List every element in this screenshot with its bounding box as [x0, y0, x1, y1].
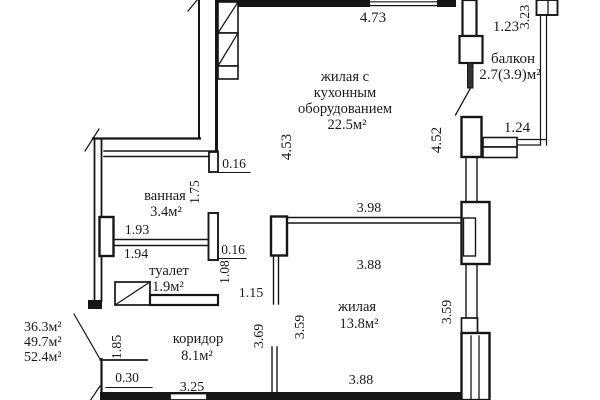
corridor-living-partition-upper: [274, 257, 279, 304]
bottom-wall: [100, 392, 462, 400]
dim-toilet-door-height: 1.08: [217, 260, 232, 284]
room-label-toilet: туалет: [149, 263, 189, 279]
balcony-door-leaf: [468, 63, 474, 88]
right-wall-window-upper: [466, 157, 477, 203]
vent-shaft: [218, 2, 238, 79]
dim-toilet-stub: 0.16: [221, 242, 245, 257]
dim-bath-width-bottom: 1.94: [124, 247, 149, 262]
floor-plan: 4.73 1.23 1.24 0.16 1.93 1.94 0.16 1.15 …: [0, 0, 600, 400]
dim-kitchen-left-height: 4.53: [279, 134, 295, 160]
toilet-door: [115, 282, 150, 305]
room-area-toilet: 1.9м²: [152, 279, 184, 295]
dim-living-right-height: 3.59: [440, 300, 455, 325]
room-label-balcony: балкон: [491, 51, 535, 67]
area-summary: 36.3м² 49.7м² 52.4м²: [24, 320, 62, 365]
balcony-left-pier-lower: [460, 36, 483, 63]
room-label-corridor: коридор: [173, 331, 223, 347]
bathroom-toilet-divider: [114, 240, 209, 246]
dim-living-inner-width-bottom: 3.88: [349, 373, 374, 388]
balcony-glazing-right: [541, 15, 547, 145]
balcony-window-sill-upper: [483, 138, 517, 148]
top-wall-left-segment: [218, 0, 370, 7]
dim-bath-stub: 0.16: [222, 156, 246, 171]
left-wall-break-tick: [85, 129, 99, 151]
bottom-left-break-tick: [90, 386, 100, 400]
dim-corridor-step: 0.30: [115, 370, 139, 385]
left-wall-break-diagonal: [74, 314, 100, 359]
balcony-left-pier-upper: [463, 0, 477, 36]
bathroom-top-wall: [104, 151, 218, 157]
left-wall-pilaster: [100, 217, 114, 256]
room-label-bathroom: ванная: [144, 188, 186, 204]
left-wall-foot: [88, 300, 102, 309]
balcony-door-swing: [456, 89, 471, 115]
room-label-living-kitchen-line3: оборудованием: [298, 101, 392, 117]
right-wall-window-lower: [466, 264, 477, 318]
dim-hall-width: 1.15: [239, 286, 264, 301]
room-area-bathroom: 3.4м²: [150, 204, 182, 220]
corridor-living-partition-lower: [272, 347, 277, 392]
dim-top-width: 4.73: [360, 10, 386, 26]
top-wall-break-tick: [188, 0, 198, 11]
room-label-living-kitchen-line1: жилая с: [320, 69, 369, 85]
dim-living-top-width: 3.98: [357, 201, 382, 216]
right-wall-window-sill: [462, 318, 478, 333]
dim-bath-width-top: 1.93: [125, 223, 150, 238]
room-area-corridor: 8.1м²: [181, 348, 213, 364]
room-label-living-kitchen-line2: кухонным: [314, 85, 376, 101]
dim-balcony-top: 1.23: [493, 19, 519, 35]
room-area-balcony: 2.7(3.9)м²: [479, 67, 541, 83]
dim-kitchen-right-height: 4.52: [429, 127, 445, 153]
dim-corridor-width: 3.25: [180, 380, 205, 395]
living-top-wall: [287, 218, 462, 224]
dim-bath-door-height: 1.75: [187, 180, 202, 204]
dim-corridor-left-height: 1.85: [110, 335, 125, 360]
top-wall-window: [370, 2, 437, 6]
balcony-glazing-bottom: [517, 140, 547, 146]
dim-balcony-bottom: 1.24: [504, 120, 531, 136]
floor-plan-drawing: 4.73 1.23 1.24 0.16 1.93 1.94 0.16 1.15 …: [0, 0, 600, 400]
living-top-wall-column: [271, 217, 287, 256]
summary-area-line1: 36.3м²: [24, 320, 62, 335]
toilet-bottom-wall: [150, 295, 218, 305]
dim-living-outer-left-height: 3.69: [252, 324, 267, 349]
balcony-top-pier: [537, 0, 558, 15]
dim-living-inner-width-top: 3.88: [357, 258, 382, 273]
right-wall-pier-upper: [462, 117, 482, 157]
summary-area-line2: 49.7м²: [24, 335, 62, 350]
summary-area-line3: 52.4м²: [24, 350, 62, 365]
room-area-living: 13.8м²: [340, 316, 380, 332]
right-wall-pier-lower: [462, 333, 490, 400]
dim-balcony-right: 3.23: [518, 5, 533, 30]
bathroom-door-stub: [209, 152, 218, 172]
divider-end-column: [209, 213, 219, 260]
balcony-window-sill-lower: [483, 147, 517, 158]
dim-living-left-height: 3.59: [293, 315, 308, 340]
room-label-living: жилая: [337, 299, 376, 315]
room-area-living-kitchen: 22.5м²: [328, 117, 368, 133]
top-wall-right-segment: [437, 0, 456, 7]
